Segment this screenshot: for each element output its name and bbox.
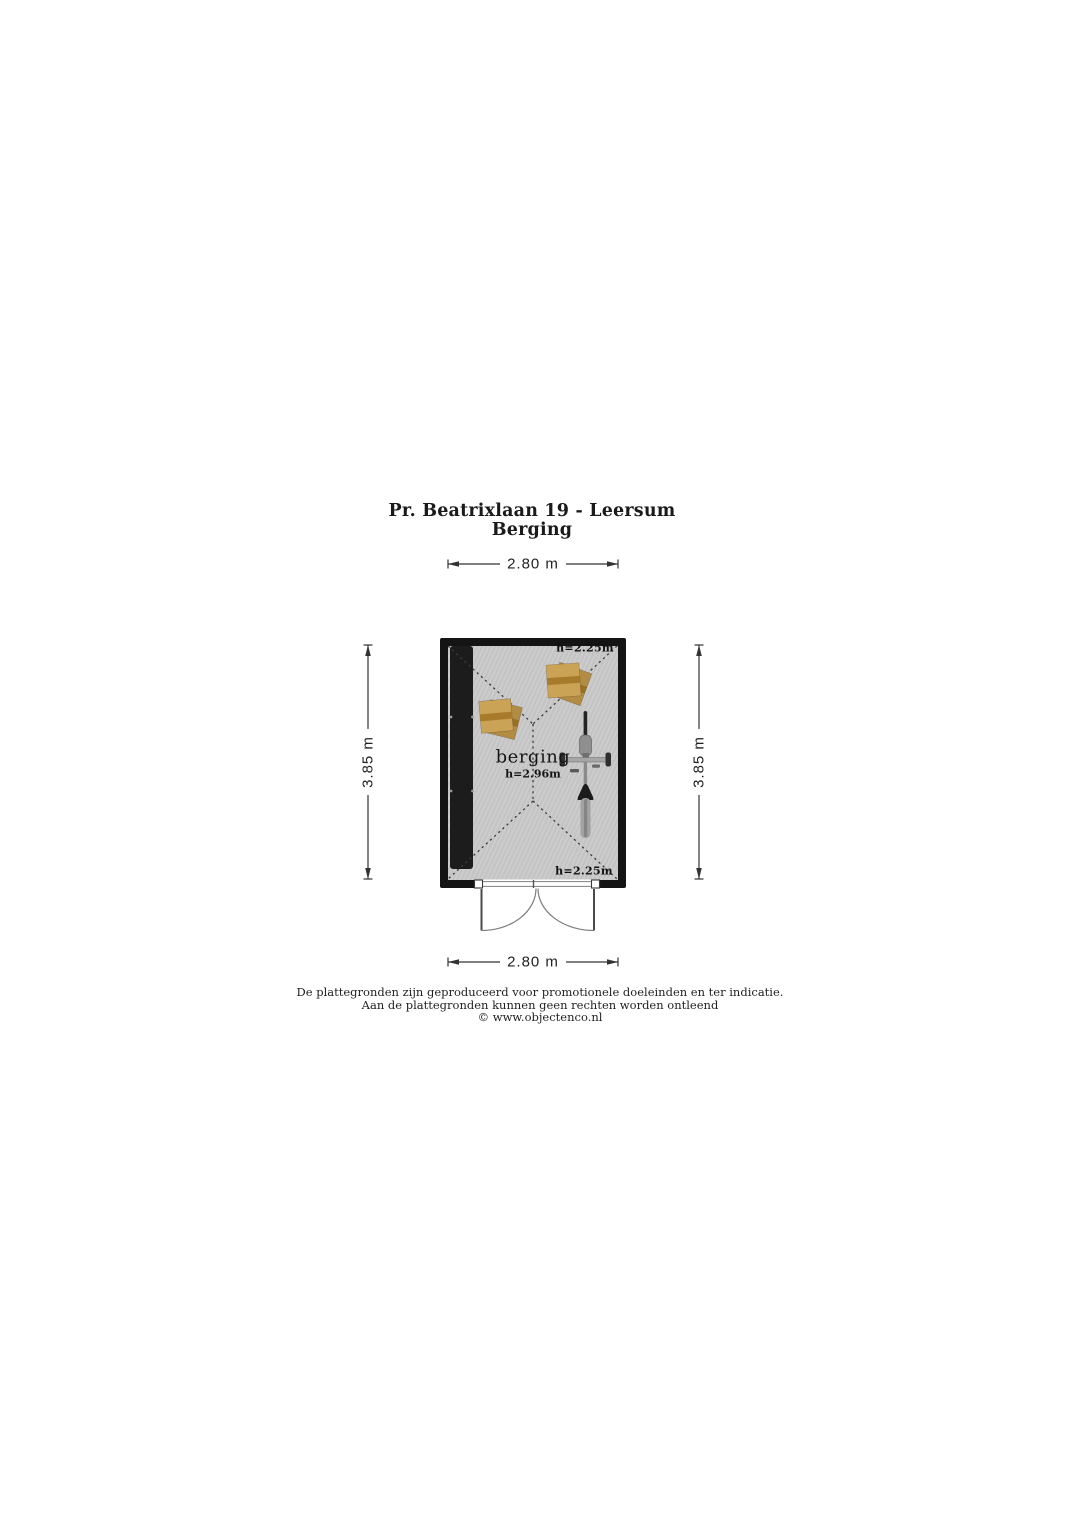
double-swing-door-icon: [475, 880, 600, 931]
dimension-label-right: 3.85 m: [691, 729, 708, 795]
dimension-label-left: 3.85 m: [360, 729, 377, 795]
bicycle-icon: [560, 711, 612, 838]
copyright-line: © www.objectenco.nl: [0, 1011, 1080, 1024]
footer-disclaimer: De plattegronden zijn geproduceerd voor …: [0, 986, 1080, 1024]
crate-icon: [546, 662, 592, 706]
disclaimer-line-1: De plattegronden zijn geproduceerd voor …: [0, 986, 1080, 999]
eave-height-label-top: h=2.25m: [556, 642, 614, 655]
cabinet-joints: [450, 716, 474, 793]
crate-icon: [479, 699, 523, 740]
room-name-label: berging: [496, 747, 571, 768]
room-ridge-height-label: h=2.96m: [505, 768, 561, 781]
dimension-label-top: 2.80 m: [500, 556, 566, 573]
dimension-label-bottom: 2.80 m: [500, 954, 566, 971]
eave-height-label-bottom: h=2.25m: [555, 865, 613, 878]
